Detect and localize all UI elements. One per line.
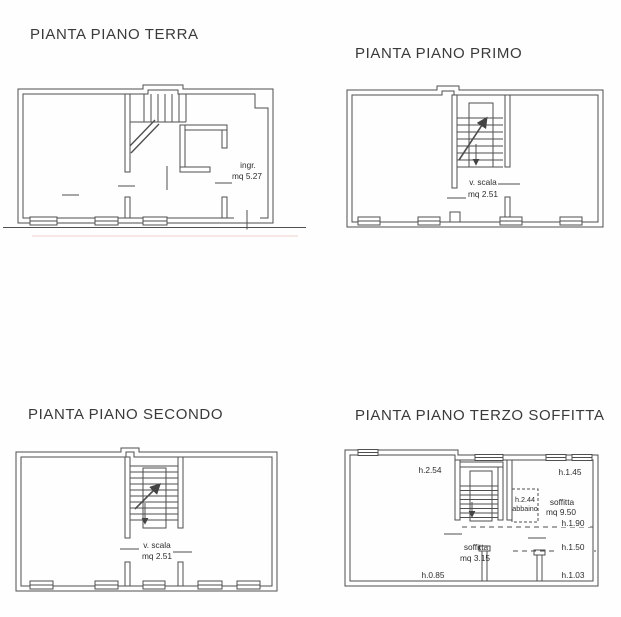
terzo-attic-center-area: mq 3.15 [460, 553, 490, 563]
primo-stair-area: mq 2.51 [468, 189, 498, 199]
terzo-attic-center-label: soffitta [464, 542, 489, 552]
primo-exterior-walls [347, 86, 603, 227]
secondo-stair-area: mq 2.51 [142, 551, 172, 561]
title-piano-terra: PIANTA PIANO TERRA [30, 26, 199, 43]
terra-ground-line [3, 228, 306, 237]
terzo-h-top-left: h.2.54 [418, 465, 441, 475]
terzo-h-bottom-left: h.0.85 [421, 570, 444, 580]
secondo-labels: v. scala mq 2.51 [142, 540, 172, 561]
terzo-attic-right-area: mq 9.50 [546, 507, 576, 517]
terzo-door-sills [444, 534, 546, 538]
primo-interior-walls [450, 95, 510, 222]
floor-plan-terzo: h.2.54 h.1.45 h.2.44 abbaino soffitta mq… [330, 440, 621, 617]
terzo-h-top-right: h.1.45 [558, 467, 581, 477]
floor-plan-primo: v. scala mq 2.51 [330, 80, 621, 240]
terzo-h-mid-right: h.1.90 [561, 518, 584, 528]
terzo-h-low-right: h.1.50 [561, 542, 584, 552]
terra-labels: ingr. mq 5.27 [232, 160, 262, 181]
terzo-attic-right-label: soffitta [550, 497, 575, 507]
title-piano-terzo: PIANTA PIANO TERZO SOFFITTA [355, 407, 605, 424]
terra-room-label: ingr. [240, 160, 256, 170]
secondo-stair-label: v. scala [143, 540, 171, 550]
terzo-h-bottom-right: h.1.03 [561, 570, 584, 580]
primo-stair-label: v. scala [469, 177, 497, 187]
terra-stairs [127, 94, 186, 153]
title-piano-primo: PIANTA PIANO PRIMO [355, 45, 522, 62]
secondo-windows [30, 581, 260, 589]
terzo-stairs [455, 462, 503, 521]
primo-stairs [457, 103, 503, 167]
primo-windows [358, 217, 582, 225]
terra-windows [30, 217, 167, 225]
terra-entrance-door [234, 210, 260, 230]
floor-plan-secondo: v. scala mq 2.51 [0, 440, 310, 617]
title-piano-secondo: PIANTA PIANO SECONDO [28, 406, 223, 423]
terzo-dormer-height: h.2.44 [515, 495, 535, 504]
secondo-stairs [130, 466, 178, 528]
secondo-interior-walls [125, 457, 183, 586]
floor-plans-sheet: PIANTA PIANO TERRA PIANTA PIANO PRIMO PI… [0, 0, 621, 617]
floor-plan-terra: ingr. mq 5.27 [0, 80, 310, 240]
terra-exterior-walls [18, 85, 273, 223]
terra-room-area: mq 5.27 [232, 171, 262, 181]
primo-labels: v. scala mq 2.51 [468, 177, 498, 199]
terzo-dormer-label: abbaino [512, 504, 538, 513]
terra-interior-walls [125, 94, 227, 218]
